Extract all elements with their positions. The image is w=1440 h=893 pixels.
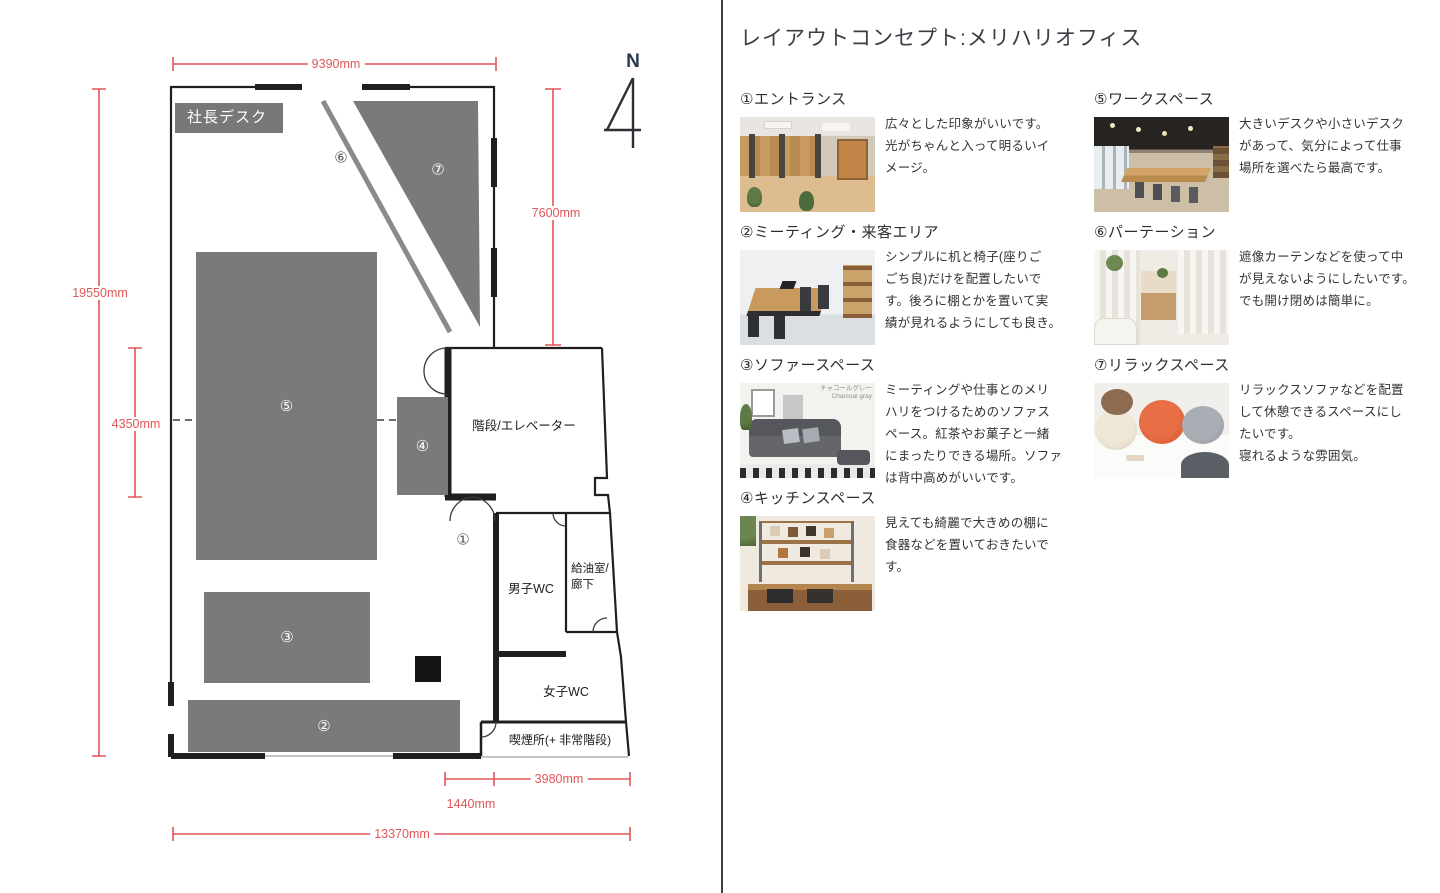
legend-item-workspace: ⑤ワークスペース 大きいデスクや小さいデスク があって、気分によって仕事 場所を… (1094, 88, 1440, 212)
room-label-womens-wc: 女子WC (543, 684, 589, 700)
legend-item-kitchen: ④キッチンスペース 見えても綺麗で大きめの棚に 食器などを置いておきたいで す。 (740, 487, 1090, 611)
sofa-photo-caption: チャコールグレー Charcoal gray (820, 385, 872, 401)
legend-photo-kitchen (740, 516, 875, 611)
area-meeting-box: ② (188, 700, 460, 752)
legend-title-meeting: ②ミーティング・来客エリア (740, 221, 1090, 242)
dim-label-right: 7600mm (528, 206, 585, 220)
compass-north-label: N (626, 51, 640, 73)
stairs-room-walls (445, 348, 629, 756)
legend-desc-kitchen: 見えても綺麗で大きめの棚に 食器などを置いておきたいで す。 (885, 512, 1075, 611)
marker-5: ⑤ (280, 399, 293, 414)
legend-photo-meeting (740, 250, 875, 345)
legend-item-entrance: ①エントランス 広々とした印象がいいです。 光がちゃんと入って明るいイ メージ。 (740, 88, 1090, 212)
dim-label-bottom-total: 13370mm (370, 827, 434, 841)
floor-plan: 社長デスク ⑤ ④ ③ ② ⑥ ⑦ ① 階段/エレベーター 男子WC 給油室/ … (0, 0, 722, 893)
room-label-supply-corridor: 給油室/ 廊下 (571, 561, 609, 593)
legend-title-entrance: ①エントランス (740, 88, 1090, 109)
legend-photo-workspace (1094, 117, 1229, 212)
page-title: レイアウトコンセプト:メリハリオフィス (740, 22, 1142, 52)
legend-photo-partition (1094, 250, 1229, 345)
dim-label-left: 19550mm (68, 286, 132, 300)
room-label-smoking: 喫煙所(+ 非常階段) (509, 732, 611, 748)
marker-4: ④ (416, 439, 429, 454)
legend-desc-entrance: 広々とした印象がいいです。 光がちゃんと入って明るいイ メージ。 (885, 113, 1075, 212)
legend-photo-relax (1094, 383, 1229, 478)
legend-title-workspace: ⑤ワークスペース (1094, 88, 1440, 109)
legend-photo-sofa: チャコールグレー Charcoal gray (740, 383, 875, 478)
legend-photo-entrance (740, 117, 875, 212)
area-workspace-box: ⑤ (196, 252, 377, 560)
legend-desc-meeting: シンプルに机と椅子(座りご ごち良)だけを配置したいで す。後ろに棚とかを置いて… (885, 246, 1075, 345)
room-label-mens-wc: 男子WC (508, 581, 554, 597)
dim-label-bottom-offset: 1440mm (443, 797, 500, 811)
legend-title-kitchen: ④キッチンスペース (740, 487, 1090, 508)
legend-title-sofa: ③ソファースペース (740, 354, 1090, 375)
marker-6: ⑥ (334, 151, 347, 166)
room-label-stairs-elevator: 階段/エレベーター (472, 418, 575, 434)
legend-desc-partition: 遮像カーテンなどを使って中 が見えないようにしたいです。 でも開け閉めは簡単に。 (1239, 246, 1429, 345)
legend-desc-workspace: 大きいデスクや小さいデスク があって、気分によって仕事 場所を選べたら最高です。 (1239, 113, 1429, 212)
marker-1: ① (456, 533, 469, 548)
dim-label-top: 9390mm (308, 57, 365, 71)
legend-desc-sofa: ミーティングや仕事とのメリ ハリをつけるためのソファス ペース。紅茶やお菓子と一… (885, 379, 1075, 489)
area-kitchen-box: ④ (397, 397, 448, 495)
legend-title-partition: ⑥パーテーション (1094, 221, 1440, 242)
legend-item-sofa: ③ソファースペース チャコールグレー Charcoal gray ミーティングや… (740, 354, 1090, 489)
legend-item-meeting: ②ミーティング・来客エリア シンプルに机と椅子(座りご ごち良)だけを配置したい… (740, 221, 1090, 345)
marker-3: ③ (280, 630, 293, 645)
legend-desc-relax: リラックスソファなどを配置 して休憩できるスペースにし たいです。 寝れるような… (1239, 379, 1429, 478)
marker-7: ⑦ (431, 163, 444, 178)
president-desk-box: 社長デスク (175, 103, 283, 133)
dim-label-bottom-small: 3980mm (531, 772, 588, 786)
area-sofa-box: ③ (204, 592, 370, 683)
pillar-block (415, 656, 441, 682)
panel-divider (721, 0, 723, 893)
wc-walls (481, 513, 626, 756)
dim-label-left-inner: 4350mm (108, 417, 165, 431)
legend-item-partition: ⑥パーテーション 遮像カーテンなどを使って中 が見えないようにしたいです。 でも… (1094, 221, 1440, 345)
compass-north-icon (604, 78, 641, 148)
legend-title-relax: ⑦リラックスペース (1094, 354, 1440, 375)
marker-2: ② (317, 719, 330, 734)
legend-item-relax: ⑦リラックスペース リラックスソファなどを配置 して休憩できるスペースにし たい… (1094, 354, 1440, 478)
